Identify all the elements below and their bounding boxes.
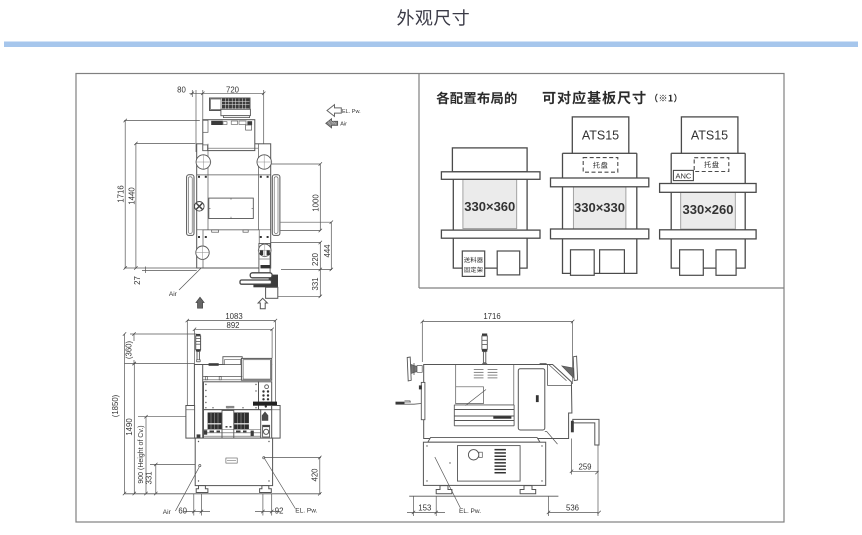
svg-text:331: 331 bbox=[145, 471, 154, 484]
svg-text:420: 420 bbox=[311, 468, 320, 482]
svg-text:EL. Pw.: EL. Pw. bbox=[459, 508, 481, 515]
svg-text:ATS15: ATS15 bbox=[582, 129, 619, 143]
svg-text:1440: 1440 bbox=[128, 187, 137, 205]
svg-text:1083: 1083 bbox=[225, 312, 242, 321]
svg-text:EL. Pw.: EL. Pw. bbox=[295, 508, 317, 515]
svg-text:1716: 1716 bbox=[117, 185, 126, 202]
svg-text:(1850): (1850) bbox=[111, 394, 120, 417]
svg-text:220: 220 bbox=[311, 252, 320, 266]
svg-text:92: 92 bbox=[275, 507, 284, 516]
svg-text:27: 27 bbox=[133, 276, 142, 285]
svg-text:ANC: ANC bbox=[675, 172, 691, 181]
svg-text:ATS15: ATS15 bbox=[691, 129, 728, 143]
svg-text:(360): (360) bbox=[125, 340, 134, 359]
svg-text:153: 153 bbox=[418, 504, 431, 513]
svg-text:Air: Air bbox=[163, 509, 172, 516]
svg-text:259: 259 bbox=[578, 463, 591, 472]
svg-text:1716: 1716 bbox=[483, 312, 500, 321]
svg-text:Air: Air bbox=[340, 122, 347, 128]
svg-text:444: 444 bbox=[323, 244, 332, 258]
svg-text:331: 331 bbox=[311, 277, 320, 290]
svg-text:892: 892 bbox=[226, 321, 239, 330]
svg-text:330×330: 330×330 bbox=[574, 200, 625, 215]
svg-text:330×360: 330×360 bbox=[464, 199, 515, 214]
svg-text:1000: 1000 bbox=[312, 194, 321, 212]
svg-text:60: 60 bbox=[178, 507, 187, 516]
svg-text:EL. Pw.: EL. Pw. bbox=[342, 109, 361, 115]
svg-text:80: 80 bbox=[177, 86, 186, 95]
svg-text:1490: 1490 bbox=[125, 418, 134, 436]
svg-text:330×260: 330×260 bbox=[683, 202, 734, 217]
svg-text:536: 536 bbox=[566, 504, 579, 513]
svg-text:Air: Air bbox=[169, 291, 178, 298]
